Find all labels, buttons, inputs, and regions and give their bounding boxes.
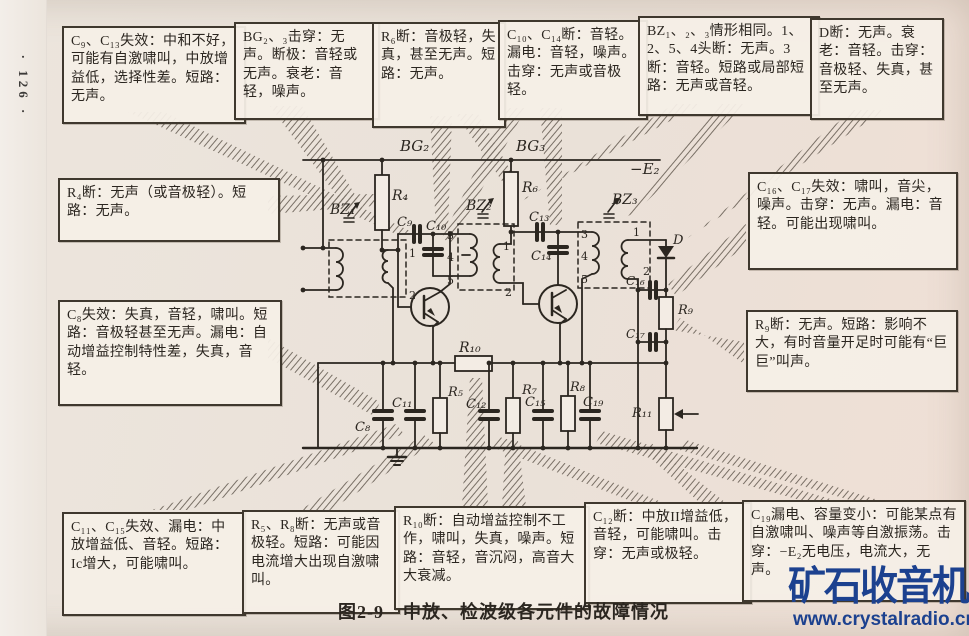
- watermark-site-name: 矿石收音机: [788, 567, 968, 607]
- svg-text:R₉: R₉: [677, 303, 694, 318]
- svg-text:C₁₁: C₁₁: [392, 396, 412, 411]
- svg-text:−E₂: −E₂: [630, 160, 660, 178]
- fault-box-c9-c13: C₉、C₁₃失效：中和不好，可能有自激啸叫，中放增益低，选择性差。短路：无声。: [62, 26, 246, 124]
- svg-text:C₈: C₈: [355, 420, 371, 435]
- svg-text:BG₃: BG₃: [515, 137, 545, 155]
- svg-text:2: 2: [643, 265, 650, 278]
- svg-text:1: 1: [503, 240, 510, 253]
- fault-box-c10-c14: C₁₀、C₁₄断：音轻。漏电：音轻，噪声。击穿：无声或音极轻。: [498, 20, 648, 120]
- svg-text:1: 1: [633, 226, 640, 239]
- fault-box-d: D断：无声。衰老：音轻。击穿：音极轻、失真，甚至无声。: [810, 18, 944, 120]
- fault-box-r9: R₉断：无声。短路：影响不大，有时音量开足时可能有“巨巨”叫声。: [746, 310, 958, 392]
- watermark-site-url: www.crystalradio.cn: [793, 610, 969, 629]
- fault-box-bg2-bg3: BG₂、₃击穿：无声。断极：音轻或无声。衰老：音轻，噪声。: [234, 22, 380, 120]
- svg-text:R₆: R₆: [521, 180, 539, 196]
- svg-text:BZ₁: BZ₁: [329, 202, 356, 218]
- svg-text:BG₂: BG₂: [399, 137, 429, 155]
- fault-box-c11-c15: C₁₁、C₁₅失效、漏电：中放增益低、音轻。短路：Ic增大，可能啸叫。: [62, 512, 246, 616]
- svg-text:2: 2: [505, 286, 512, 299]
- svg-text:C₁₇: C₁₇: [626, 327, 645, 341]
- svg-text:C₁₅: C₁₅: [525, 395, 546, 410]
- svg-text:2: 2: [409, 289, 416, 302]
- fault-box-r4: R₄断：无声（或音极轻）。短路：无声。: [58, 178, 280, 242]
- fault-box-r10: R₁₀断：自动增益控制不工作，啸叫，失真，噪声。短路：音轻，音沉闷，高音大大衰减…: [394, 506, 590, 610]
- figure-caption: 图2-9 中放、检波级各元件的故障情况: [338, 598, 669, 624]
- scanned-book-page: · 126 ·: [0, 0, 969, 636]
- svg-text:R₁₁: R₁₁: [631, 406, 652, 421]
- fault-box-c16-c17: C₁₆、C₁₇失效：啸叫，音尖，噪声。击穿：无声。漏电：音轻。可能出现啸叫。: [748, 172, 958, 270]
- svg-text:C₁₄: C₁₄: [531, 249, 551, 264]
- fault-box-bz1-2-3: BZ₁、₂、₃情形相同。1、2、5、4头断：无声。3断：音轻。短路或局部短路：无…: [638, 16, 820, 116]
- svg-text:D: D: [672, 233, 684, 248]
- svg-text:3: 3: [447, 229, 454, 242]
- svg-text:BZ₃: BZ₃: [611, 192, 638, 208]
- svg-text:1: 1: [409, 247, 416, 260]
- svg-text:R₁₀: R₁₀: [458, 340, 481, 356]
- svg-text:R₄: R₄: [391, 188, 409, 204]
- fault-box-r6: R₆断：音极轻，失真，甚至无声。短路：无声。: [372, 22, 506, 128]
- svg-text:R₅: R₅: [447, 385, 464, 400]
- svg-text:C₁₀: C₁₀: [426, 219, 447, 234]
- fault-box-c12: C₁₂断：中放II增益低，音轻，可能啸叫。击穿：无声或极轻。: [584, 502, 752, 604]
- svg-text:C₁₂: C₁₂: [466, 397, 486, 412]
- svg-text:BZ₂: BZ₂: [465, 198, 492, 214]
- svg-text:C₁₉: C₁₉: [583, 395, 604, 410]
- svg-text:5: 5: [581, 273, 588, 286]
- svg-text:4: 4: [581, 250, 588, 263]
- svg-text:C₉: C₉: [397, 215, 413, 230]
- svg-text:4: 4: [447, 251, 454, 264]
- svg-text:R₈: R₈: [569, 380, 586, 395]
- fault-box-c8: C₈失效：失真，音轻，啸叫。短路：音极轻甚至无声。漏电：自动增益控制特性差，失真…: [58, 300, 282, 406]
- svg-text:5: 5: [447, 274, 454, 287]
- svg-text:C₁₃: C₁₃: [529, 210, 549, 225]
- svg-text:3: 3: [581, 228, 588, 241]
